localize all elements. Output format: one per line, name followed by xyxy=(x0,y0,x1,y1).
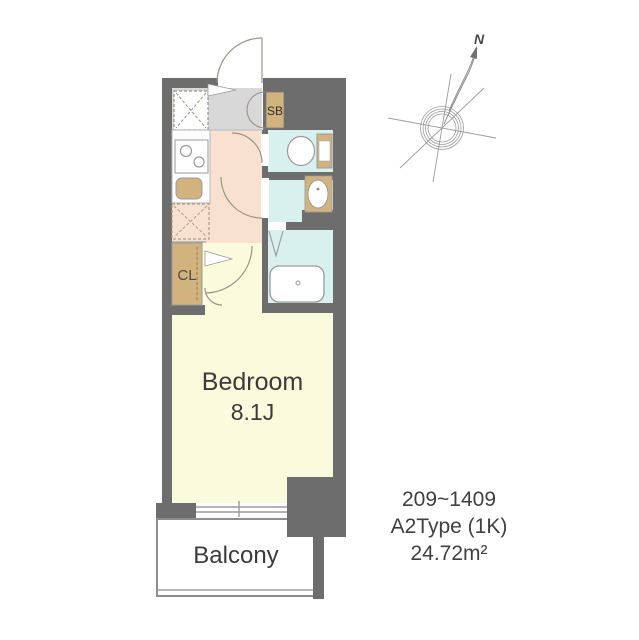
window-backing xyxy=(196,503,287,518)
toilet-tank-lid xyxy=(319,141,330,161)
stove-icon xyxy=(175,140,208,173)
closet-label: CL xyxy=(177,267,196,284)
floor-plan-drawing: N CL SB xyxy=(0,0,639,640)
bedroom-size-label: 8.1J xyxy=(172,399,333,426)
washroom-door-threshold xyxy=(261,178,269,218)
bedroom-window xyxy=(196,501,287,518)
unit-floor-area: 24.72m² xyxy=(375,540,523,567)
wall-washroom-bath xyxy=(286,222,333,230)
bedroom-label: Bedroom xyxy=(172,368,333,397)
floor-plan-page: N CL SB Bedroom 8.1J Balcony 209~1409 A2… xyxy=(0,0,639,640)
unit-info-block: 209~1409 A2Type (1K) 24.72m² xyxy=(375,486,523,567)
compass-arrowhead xyxy=(470,46,477,59)
wall-mid-stub1 xyxy=(262,130,268,134)
kitchen-sink-icon xyxy=(176,178,202,199)
bathtub-icon xyxy=(270,266,324,302)
unit-floor-range: 209~1409 xyxy=(375,486,523,513)
toilet-icon xyxy=(288,137,315,166)
washbasin-icon xyxy=(308,180,328,208)
wall-left xyxy=(162,88,172,518)
wall-pillar xyxy=(287,477,346,537)
entrance-door-swing xyxy=(217,38,262,83)
compass-rose-icon: N xyxy=(388,31,496,182)
balcony-label: Balcony xyxy=(157,542,315,570)
wall-closet-stub xyxy=(170,305,205,315)
wall-mid-stub2 xyxy=(262,166,268,178)
wall-mid-lower xyxy=(262,218,268,303)
unit-type: A2Type (1K) xyxy=(375,513,523,540)
compass-north-label: N xyxy=(474,31,485,47)
compass-spoke-3 xyxy=(400,88,484,168)
shoe-box-label: SB xyxy=(267,104,283,118)
wall-bath-bottom xyxy=(262,303,333,313)
bedroom-floor-corner xyxy=(262,477,287,505)
wall-bottom-left xyxy=(156,503,196,518)
wall-right xyxy=(333,88,346,477)
washbasin-faucet-dot xyxy=(317,188,320,191)
